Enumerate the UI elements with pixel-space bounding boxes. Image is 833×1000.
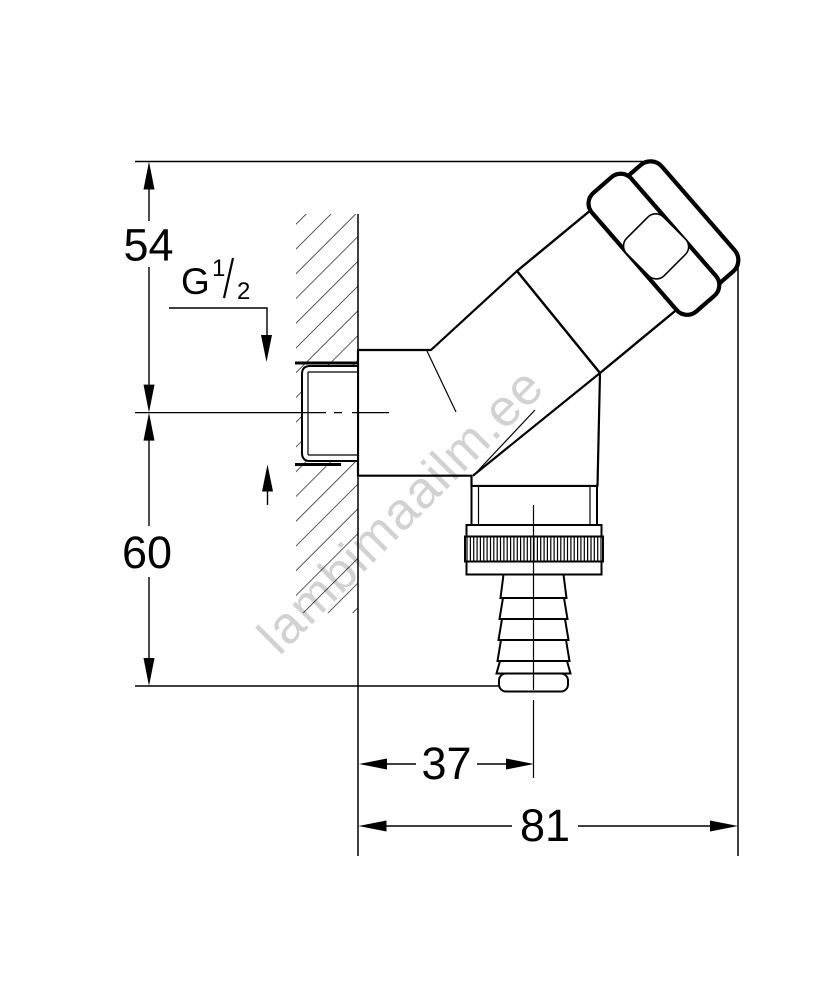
svg-text:37: 37	[421, 738, 471, 789]
svg-text:54: 54	[123, 220, 173, 271]
svg-text:2: 2	[237, 278, 250, 305]
svg-text:G: G	[181, 261, 210, 302]
svg-text:1: 1	[212, 255, 225, 282]
svg-text:60: 60	[122, 527, 172, 578]
svg-text:81: 81	[520, 800, 570, 851]
